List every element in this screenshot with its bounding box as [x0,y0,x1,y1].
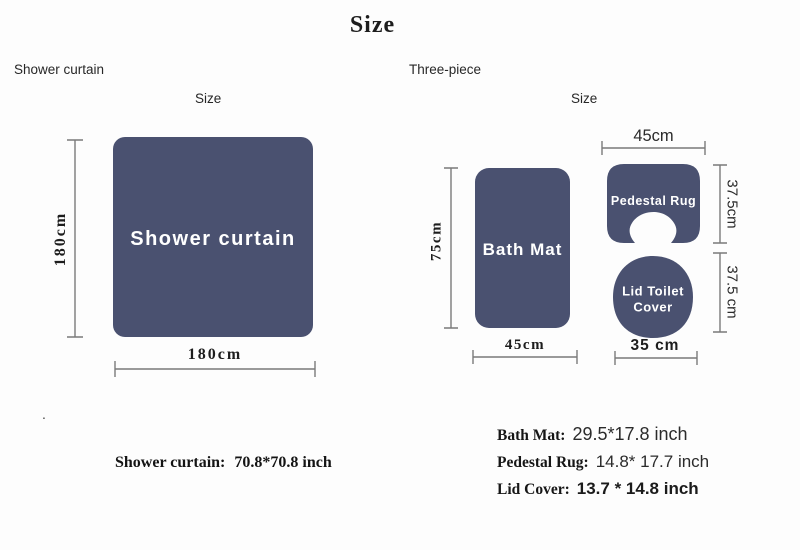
rug-height-dim-label: 37.5cm [724,179,741,228]
lid-height-dim-label: 37.5 cm [724,265,741,318]
left-section-label: Shower curtain [14,62,104,77]
footnote-lid-cover-value: 13.7 * 14.8 inch [577,479,699,499]
footnote-pedestal-rug-label: Pedestal Rug: [497,454,589,472]
footnote-pedestal-rug: Pedestal Rug: 14.8* 17.7 inch [497,452,709,472]
footnote-lid-cover: Lid Cover: 13.7 * 14.8 inch [497,479,709,499]
lid-cover-label-line2: Cover [622,299,684,315]
right-size-label: Size [571,91,597,106]
lid-cover-label-line1: Lid Toilet [622,283,684,299]
bathmat-height-dim-label: 75cm [429,221,446,261]
lid-cover-shape-label: Lid Toilet Cover [622,283,684,314]
footnote-bath-mat: Bath Mat: 29.5*17.8 inch [497,424,709,445]
footnote-bath-mat-label: Bath Mat: [497,427,565,445]
pedestal-rug-shape-label: Pedestal Rug [607,194,700,208]
bathmat-height-dim-line [444,168,458,328]
right-section-label: Three-piece [409,62,481,77]
footnote-lid-cover-label: Lid Cover: [497,481,570,499]
size-chart: Size Shower curtain Size 180cm Shower cu… [0,0,800,550]
left-size-label: Size [195,91,221,106]
rug-width-dim-label: 45cm [602,127,705,146]
curtain-footnote: Shower curtain: 70.8*70.8 inch [115,454,332,472]
curtain-footnote-value: 70.8*70.8 inch [234,454,331,471]
shower-curtain-shape-label: Shower curtain [113,228,313,251]
lid-width-dim-label: 35 cm [612,337,698,355]
curtain-width-dim-label: 180cm [115,346,315,364]
curtain-footnote-label: Shower curtain: [115,454,225,471]
page-title: Size [330,12,415,39]
bath-mat-shape-label: Bath Mat [475,240,570,260]
footnote-bath-mat-value: 29.5*17.8 inch [572,424,687,445]
footnote-pedestal-rug-value: 14.8* 17.7 inch [596,452,709,472]
three-piece-footnotes: Bath Mat: 29.5*17.8 inch Pedestal Rug: 1… [497,424,709,506]
stray-dot: . [42,406,46,422]
bathmat-width-dim-label: 45cm [473,337,577,354]
curtain-height-dim-label: 180cm [52,212,70,266]
